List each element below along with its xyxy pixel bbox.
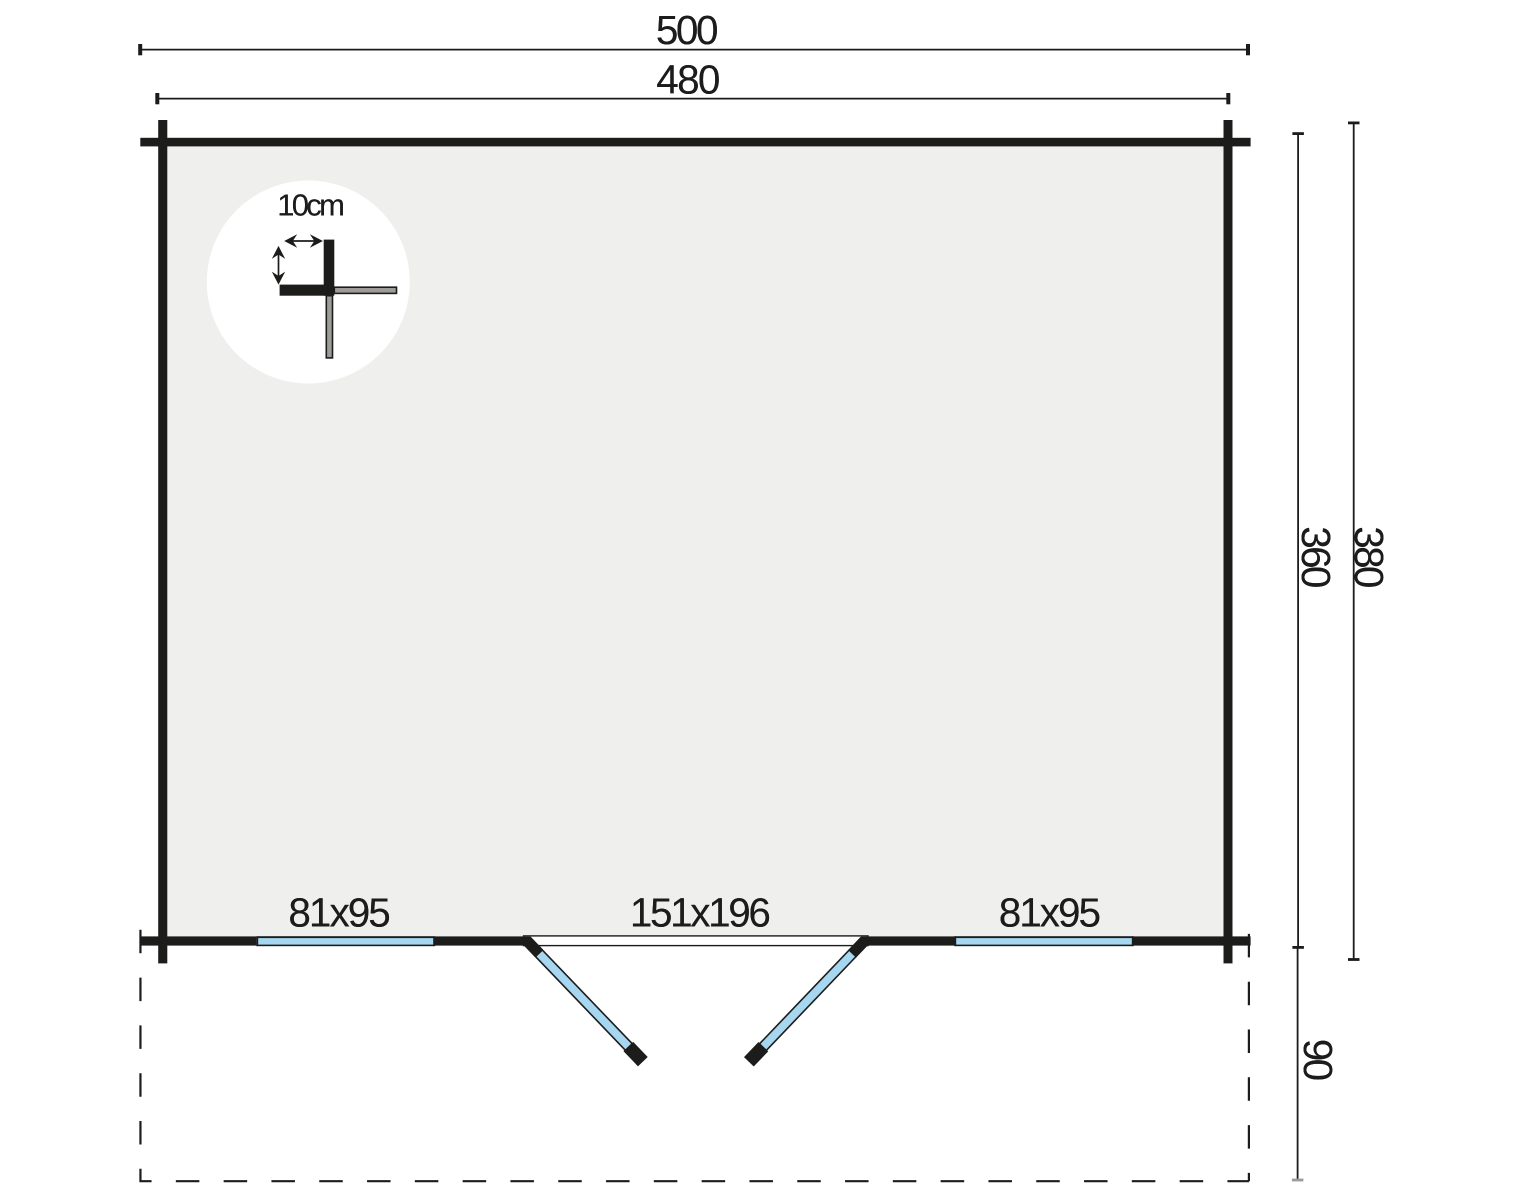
svg-text:480: 480 (656, 56, 719, 102)
svg-text:380: 380 (1346, 526, 1392, 587)
svg-text:360: 360 (1293, 526, 1339, 587)
svg-text:151x196: 151x196 (630, 889, 769, 935)
svg-text:90: 90 (1295, 1039, 1341, 1080)
svg-text:500: 500 (656, 7, 717, 53)
svg-text:10cm: 10cm (277, 188, 343, 223)
svg-text:81x95: 81x95 (999, 889, 1100, 935)
svg-text:81x95: 81x95 (288, 889, 389, 935)
